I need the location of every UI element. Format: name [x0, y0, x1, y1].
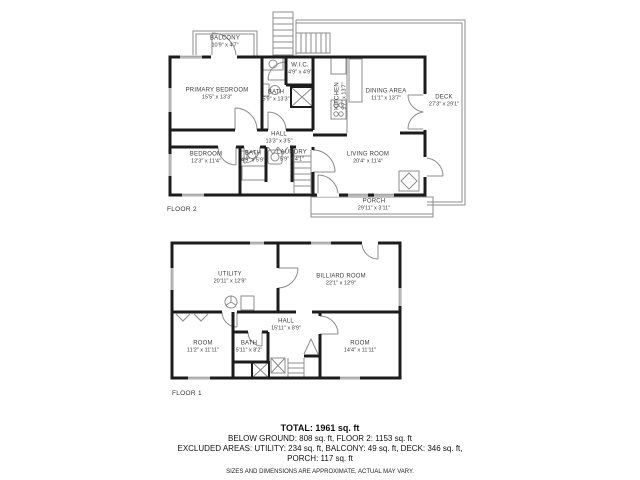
- floor-plan-page: BALCONY 10'9" x 4'7" PRIMARY BEDROOM 15'…: [0, 0, 640, 480]
- floor2-openings: [168, 55, 427, 197]
- floorplan-drawing: [0, 0, 640, 480]
- floor1-walls: [172, 243, 400, 378]
- summary-disclaimer: SIZES AND DIMENSIONS ARE APPROXIMATE, AC…: [0, 468, 640, 476]
- summary-below-ground: BELOW GROUND: 808 sq. ft, FLOOR 2: 1153 …: [0, 434, 640, 444]
- floor2-label: FLOOR 2: [167, 206, 197, 213]
- summary-excluded-areas-cont: PORCH: 117 sq. ft: [0, 454, 640, 464]
- summary-excluded-areas: EXCLUDED AREAS: UTILITY: 234 sq. ft, BAL…: [0, 444, 640, 454]
- floor1-label: FLOOR 1: [172, 390, 202, 397]
- summary-total: TOTAL: 1961 sq. ft: [0, 423, 640, 434]
- area-summary: TOTAL: 1961 sq. ft BELOW GROUND: 808 sq.…: [0, 423, 640, 476]
